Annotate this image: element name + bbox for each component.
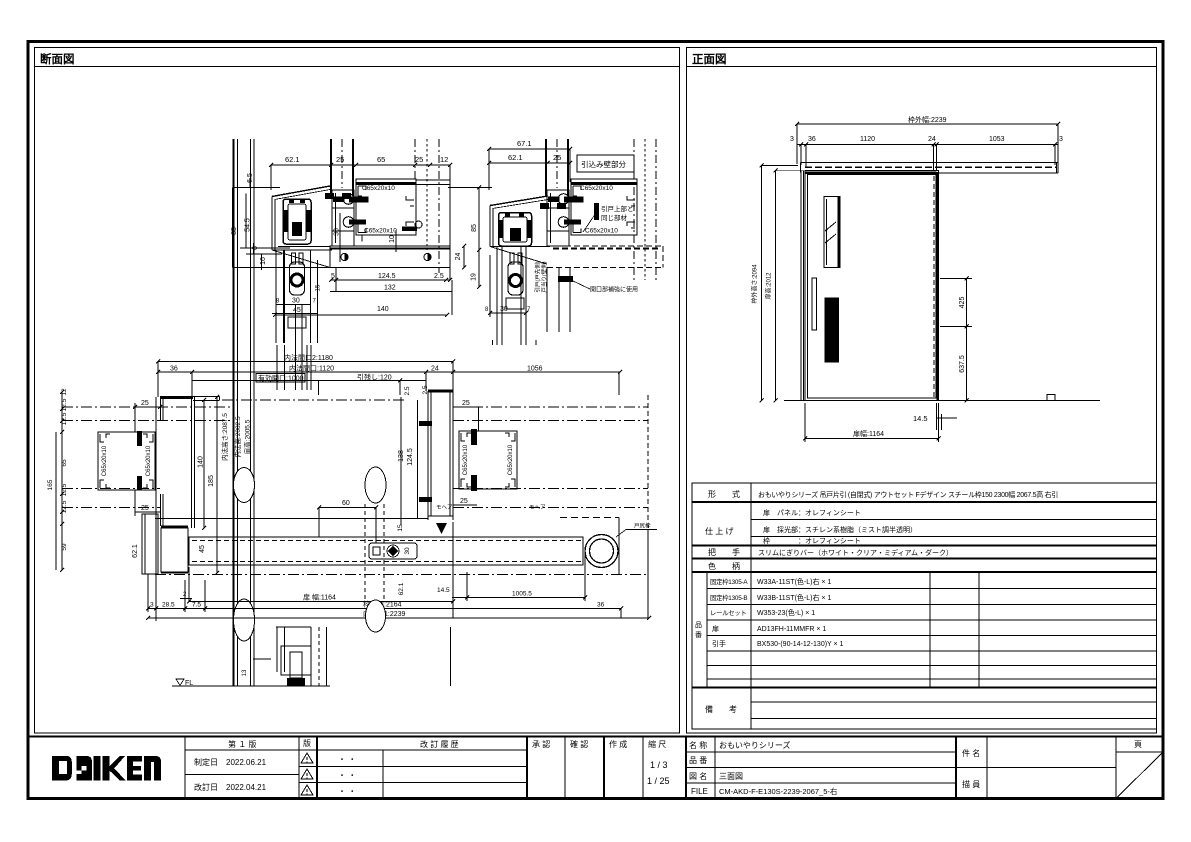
svg-text:62.1: 62.1: [398, 582, 405, 595]
svg-text:枠 ：オレフィンシート: 枠 ：オレフィンシート: [763, 536, 861, 545]
svg-text:637.5: 637.5: [959, 355, 966, 373]
svg-text:425: 425: [959, 297, 966, 309]
svg-text:品: 品: [695, 621, 702, 629]
svg-text:24: 24: [928, 136, 936, 143]
svg-text:16: 16: [260, 257, 267, 265]
svg-text:3: 3: [790, 136, 794, 143]
svg-text:確 認: 確 認: [570, 739, 588, 749]
svg-text:枠外幅:2239: 枠外幅:2239: [908, 115, 947, 124]
svg-text:65: 65: [377, 155, 385, 164]
svg-text:C65x20x10: C65x20x10: [585, 228, 618, 235]
svg-text:2.5: 2.5: [422, 385, 429, 394]
svg-text:C65x20x10: C65x20x10: [364, 228, 397, 235]
svg-text:備 考: 備 考: [705, 704, 737, 714]
svg-text:・ ・: ・ ・: [338, 787, 356, 796]
svg-text:C65x20x10: C65x20x10: [362, 185, 395, 192]
svg-text:C65x20x10: C65x20x10: [463, 444, 469, 475]
svg-text:13: 13: [242, 669, 248, 676]
svg-text:作 成: 作 成: [609, 739, 627, 749]
svg-text:30: 30: [500, 306, 508, 313]
svg-text:185: 185: [208, 475, 215, 487]
svg-text:色 柄: 色 柄: [708, 561, 740, 571]
svg-text:25: 25: [462, 400, 470, 407]
svg-text:CM-AKD-F-E130S-2239-2067_5-右: CM-AKD-F-E130S-2239-2067_5-右: [719, 786, 838, 796]
svg-text:25: 25: [460, 498, 468, 505]
svg-text:形 式: 形 式: [708, 489, 740, 499]
svg-text:扉 パネル：オレフィンシート: 扉 パネル：オレフィンシート: [763, 508, 861, 517]
svg-text:1120: 1120: [860, 136, 875, 143]
svg-text:14.5: 14.5: [437, 587, 450, 594]
svg-text:固定枠1305-B: 固定枠1305-B: [710, 593, 747, 602]
svg-text:FL: FL: [185, 680, 193, 687]
svg-text:30: 30: [334, 228, 341, 236]
svg-text:2022.04.21: 2022.04.21: [226, 783, 267, 792]
svg-text:12.5: 12.5: [61, 412, 68, 425]
svg-text:仕 上 げ: 仕 上 げ: [705, 526, 733, 536]
svg-text:扉 採光部：スチレン系樹脂（ミスト調半透明）: 扉 採光部：スチレン系樹脂（ミスト調半透明）: [763, 525, 917, 534]
svg-text:1053: 1053: [989, 136, 1005, 143]
svg-text:品 番: 品 番: [689, 755, 707, 765]
svg-text:改 訂 履 歴: 改 訂 履 歴: [420, 739, 459, 749]
svg-text:承 認: 承 認: [532, 739, 550, 749]
svg-text:24: 24: [455, 253, 462, 261]
svg-text:FILE: FILE: [691, 787, 708, 796]
svg-text:描 員: 描 員: [962, 779, 980, 789]
svg-text:124.5: 124.5: [378, 273, 396, 280]
svg-text:C65x20x10: C65x20x10: [102, 445, 108, 476]
svg-text:引戸上部と: 引戸上部と: [601, 204, 634, 213]
svg-text:モヘア: モヘア: [436, 504, 453, 511]
svg-text:45: 45: [293, 307, 301, 314]
svg-text:45: 45: [199, 545, 206, 553]
svg-text:3: 3: [150, 602, 154, 609]
svg-text:19: 19: [471, 273, 478, 281]
svg-text:2022.06.21: 2022.06.21: [226, 758, 267, 767]
svg-text:戸尻枠: 戸尻枠: [634, 522, 651, 530]
svg-text:枠外高さ:2094: 枠外高さ:2094: [751, 264, 759, 304]
svg-text:引込み壁部分: 引込み壁部分: [581, 159, 626, 169]
svg-text:改訂日: 改訂日: [194, 782, 218, 792]
svg-text:7.5: 7.5: [192, 602, 201, 609]
svg-text:6: 6: [252, 246, 259, 250]
svg-text:8: 8: [276, 299, 280, 305]
svg-text:60: 60: [342, 500, 350, 507]
svg-text:36: 36: [170, 366, 178, 373]
svg-text:おもいやりシリーズ 吊戸片引 (自閉式) アウトセット Fデ: おもいやりシリーズ 吊戸片引 (自閉式) アウトセット Fデザイン スチール枠1…: [758, 490, 1058, 499]
svg-text:番: 番: [695, 631, 702, 639]
svg-text:85: 85: [471, 224, 478, 232]
svg-text:引戸(戸先側): 引戸(戸先側): [534, 261, 542, 292]
svg-text:140: 140: [198, 456, 205, 468]
svg-text:15: 15: [316, 284, 322, 291]
svg-text:65: 65: [61, 459, 68, 467]
svg-text:25: 25: [141, 400, 149, 407]
svg-text:固定枠1305-A: 固定枠1305-A: [710, 577, 748, 586]
svg-text:3: 3: [1059, 136, 1063, 143]
svg-text:132: 132: [384, 285, 396, 292]
svg-text:7: 7: [313, 299, 317, 305]
svg-text:扉 幅:1164: 扉 幅:1164: [303, 593, 336, 602]
svg-text:138: 138: [398, 450, 405, 462]
svg-text:25: 25: [415, 155, 423, 164]
svg-text:7: 7: [527, 307, 531, 313]
svg-text:62.1: 62.1: [132, 544, 139, 558]
svg-text:124.5: 124.5: [407, 448, 414, 466]
svg-text:開口部補強に使用: 開口部補強に使用: [590, 286, 638, 294]
svg-text:正面図: 正面図: [692, 52, 727, 66]
svg-text:頁: 頁: [1134, 740, 1142, 749]
svg-text:67.1: 67.1: [517, 139, 532, 148]
svg-text:制定日: 制定日: [194, 757, 218, 767]
svg-text:C65x20x10: C65x20x10: [508, 444, 514, 475]
svg-text:・ ・: ・ ・: [338, 771, 356, 780]
svg-text:25: 25: [336, 155, 344, 164]
svg-text:件 名: 件 名: [962, 748, 980, 758]
svg-text:内法間口2:1180: 内法間口2:1180: [284, 353, 333, 362]
svg-text:28.5: 28.5: [162, 602, 175, 609]
svg-text:名 称: 名 称: [689, 740, 707, 750]
svg-text:15: 15: [397, 524, 404, 532]
svg-text:12.5: 12.5: [61, 483, 68, 496]
svg-text:C65x20x10: C65x20x10: [580, 185, 613, 192]
svg-text:スリムにぎりバー（ホワイト・クリア・ミディアム・ダーク）: スリムにぎりバー（ホワイト・クリア・ミディアム・ダーク）: [758, 548, 953, 557]
svg-text:59: 59: [61, 543, 68, 551]
svg-text:62.1: 62.1: [285, 155, 300, 164]
svg-text:36: 36: [597, 602, 605, 609]
svg-text:BX530-(90-14-12-130)Y × 1: BX530-(90-14-12-130)Y × 1: [757, 641, 844, 648]
svg-text:三面図: 三面図: [719, 772, 743, 781]
svg-text:30: 30: [292, 298, 300, 305]
svg-text:W353-23(色-L) × 1: W353-23(色-L) × 1: [757, 608, 815, 617]
svg-text:36: 36: [808, 136, 816, 143]
svg-text:165: 165: [47, 479, 54, 490]
svg-text:扉高:2005.5: 扉高:2005.5: [243, 419, 252, 454]
svg-text:12.5: 12.5: [61, 398, 68, 411]
svg-text:W33B-11ST(色-L)右 × 1: W33B-11ST(色-L)右 × 1: [757, 593, 831, 602]
svg-text:扉高:2012: 扉高:2012: [765, 272, 773, 300]
svg-text:内法間口:1120: 内法間口:1120: [289, 364, 334, 373]
svg-text:1 / 25: 1 / 25: [647, 776, 670, 786]
svg-text:1 / 3: 1 / 3: [650, 760, 668, 770]
svg-text:W33A-11ST(色-L)右 × 1: W33A-11ST(色-L)右 × 1: [757, 577, 831, 586]
svg-text:把 手: 把 手: [708, 547, 740, 557]
svg-text:25: 25: [141, 505, 149, 512]
svg-text:おもいやりシリーズ: おもいやりシリーズ: [719, 740, 790, 750]
svg-text:モヘア: モヘア: [529, 504, 546, 511]
svg-text:2.5: 2.5: [404, 386, 411, 395]
svg-text:2.5: 2.5: [434, 273, 444, 280]
svg-text:12: 12: [61, 388, 68, 396]
svg-text:8: 8: [485, 307, 489, 313]
svg-text:有効開口:1000: 有効開口:1000: [258, 374, 304, 383]
svg-text:レールセット: レールセット: [710, 609, 747, 617]
svg-text:10: 10: [389, 235, 396, 243]
svg-text:内法高:2002.5: 内法高:2002.5: [233, 416, 242, 458]
svg-text:引残し:120: 引残し:120: [357, 373, 392, 382]
svg-text:同じ部材: 同じ部材: [601, 213, 628, 222]
svg-text:12.5: 12.5: [61, 500, 68, 513]
svg-text:C65x20x10: C65x20x10: [146, 445, 152, 476]
svg-text:140: 140: [377, 306, 389, 313]
svg-text:断面図: 断面図: [40, 52, 75, 66]
svg-text:扉: 扉: [712, 624, 719, 633]
svg-text:1056: 1056: [527, 366, 543, 373]
svg-text:版: 版: [303, 738, 311, 748]
svg-text:24: 24: [431, 366, 439, 373]
svg-text:・ ・: ・ ・: [338, 755, 356, 764]
svg-text:1005.5: 1005.5: [512, 591, 532, 598]
svg-text:縮 尺: 縮 尺: [648, 739, 666, 749]
svg-text:第 １ 版: 第 １ 版: [228, 739, 256, 749]
svg-text:30: 30: [404, 547, 411, 555]
svg-text:12: 12: [440, 155, 448, 164]
svg-text:図 名: 図 名: [689, 771, 707, 781]
svg-text:5: 5: [331, 273, 335, 280]
svg-text:扉幅:1164: 扉幅:1164: [853, 429, 884, 438]
svg-text:62.1: 62.1: [508, 153, 523, 162]
svg-text:AD13FH-11MMFR × 1: AD13FH-11MMFR × 1: [757, 626, 826, 633]
svg-text:内法高さ:2087.5: 内法高さ:2087.5: [220, 413, 229, 461]
svg-text:14.5: 14.5: [913, 414, 928, 423]
svg-text:引手: 引手: [712, 639, 726, 648]
